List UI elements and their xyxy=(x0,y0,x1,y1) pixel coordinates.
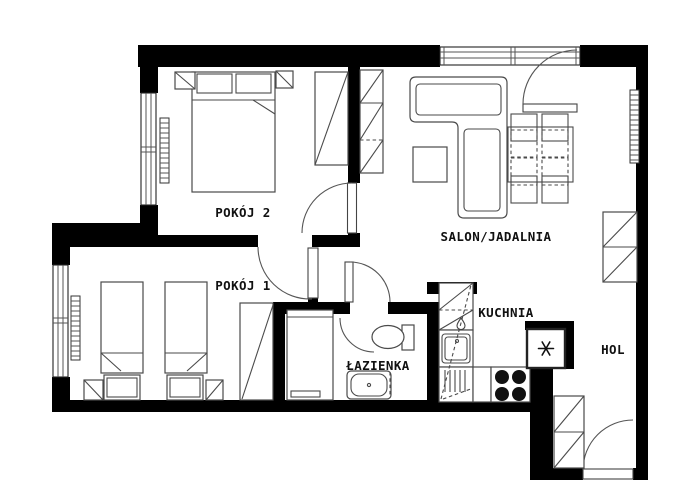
counter-segment xyxy=(473,367,491,402)
nightstand-left xyxy=(175,72,195,89)
coffee-table xyxy=(413,147,447,182)
label-salon: SALON/JADALNIA xyxy=(441,229,552,244)
wardrobe-salon xyxy=(603,212,637,282)
nightstand-right xyxy=(276,71,293,88)
floor-plan-svg: POKÓJ 2 POKÓJ 1 SALON/JADALNIA ŁAZIENKA … xyxy=(0,0,700,500)
dishwasher-rack xyxy=(439,367,473,402)
label-pokoj-2: POKÓJ 2 xyxy=(215,205,270,220)
wardrobe-hol xyxy=(554,396,584,468)
floor-plan: POKÓJ 2 POKÓJ 1 SALON/JADALNIA ŁAZIENKA … xyxy=(0,0,700,500)
wardrobe-pokoj-2 xyxy=(315,72,348,165)
radiator-pokoj-1 xyxy=(71,296,80,360)
label-pokoj-1: POKÓJ 1 xyxy=(215,278,270,293)
fridge xyxy=(527,329,565,368)
kitchen-sink xyxy=(439,330,473,367)
window-pokoj-1 xyxy=(53,265,68,377)
bathroom-sink xyxy=(347,371,391,399)
bedside-unit-left xyxy=(84,380,103,400)
window-salon-balcony xyxy=(440,47,580,65)
shower-closet-column xyxy=(287,310,333,400)
bedside-unit-right xyxy=(206,380,223,400)
single-bed-2 xyxy=(165,282,207,400)
toilet xyxy=(372,325,414,350)
kitchen-tall-cabinet xyxy=(439,283,473,330)
wardrobe-pokoj-1 xyxy=(240,303,273,400)
label-kuchnia: KUCHNIA xyxy=(478,305,534,320)
radiator-salon xyxy=(630,90,639,163)
label-hol: HOL xyxy=(601,342,625,357)
label-lazienka: ŁAZIENKA xyxy=(345,358,409,373)
stove xyxy=(491,367,530,402)
double-bed xyxy=(192,72,275,192)
window-pokoj-2 xyxy=(141,93,156,205)
single-bed-1 xyxy=(101,282,143,400)
shelving-unit xyxy=(360,70,383,173)
radiator-pokoj-2 xyxy=(160,118,169,183)
furniture-hol xyxy=(554,396,584,468)
